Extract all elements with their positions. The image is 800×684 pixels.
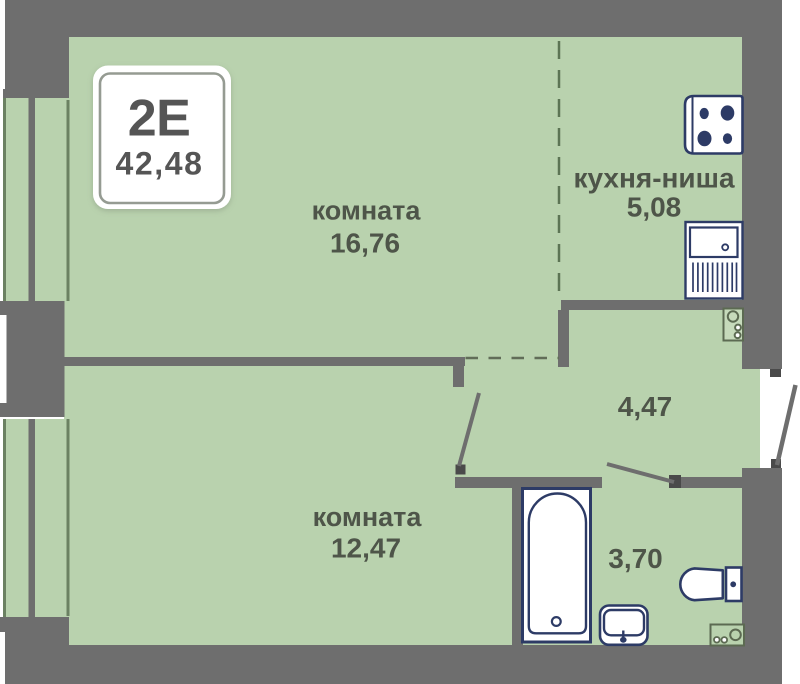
svg-text:комната: комната (312, 196, 422, 226)
svg-text:12,47: 12,47 (331, 533, 401, 564)
svg-text:5,08: 5,08 (627, 192, 682, 223)
svg-text:42,48: 42,48 (115, 146, 203, 182)
svg-text:3,70: 3,70 (608, 543, 663, 574)
svg-text:16,76: 16,76 (330, 228, 400, 259)
svg-text:кухня-ниша: кухня-ниша (573, 163, 735, 194)
svg-text:4,47: 4,47 (618, 391, 673, 422)
svg-text:комната: комната (313, 502, 423, 532)
svg-text:2Е: 2Е (128, 90, 191, 148)
